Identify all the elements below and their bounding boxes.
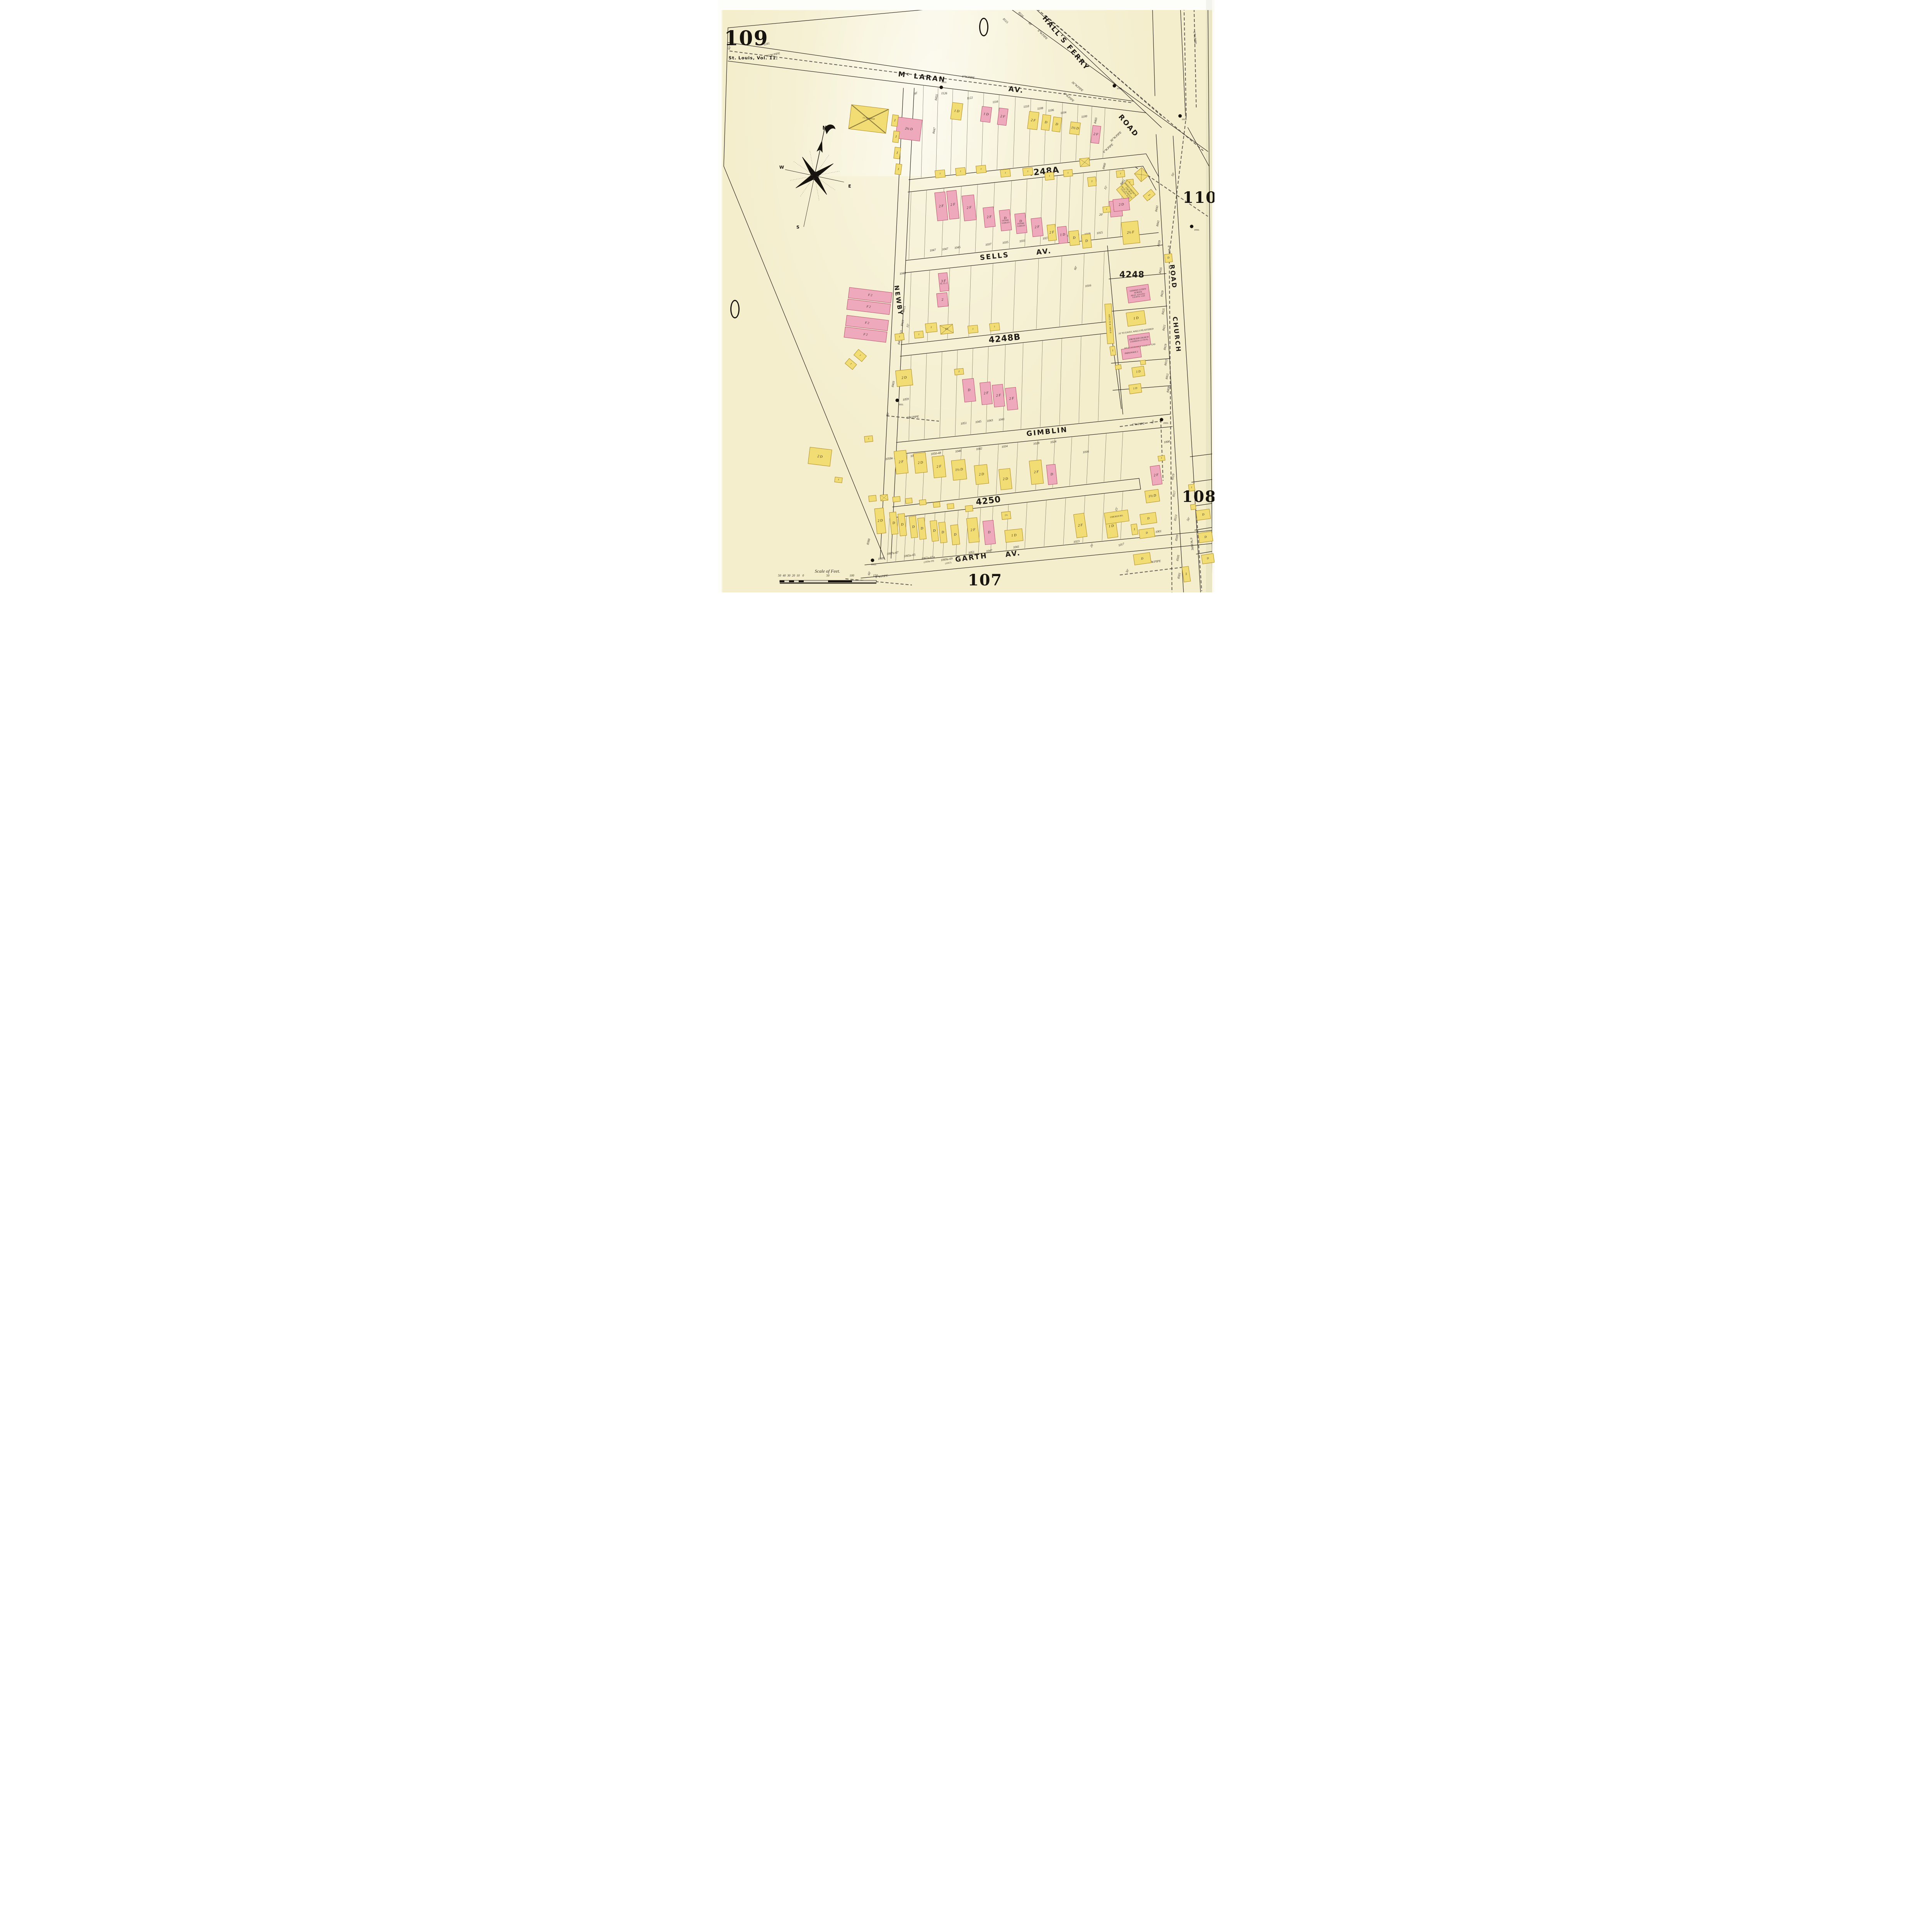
compass-letter-w: W [779, 165, 784, 170]
building [1140, 360, 1146, 365]
scale-tick-label: 10 [797, 574, 800, 577]
building: D [1164, 253, 1172, 263]
building-label: 1 [960, 170, 961, 173]
building: 2 F [932, 455, 946, 478]
building-label: 1 [1185, 572, 1187, 576]
building: 2½ F [1121, 221, 1140, 245]
building-label: 2 D [1002, 477, 1008, 481]
building-label: 2 F [1078, 523, 1083, 527]
building-label: F 2 [865, 321, 869, 325]
building-label: 1 D [1108, 524, 1114, 528]
building-label: 2 F [1049, 231, 1054, 235]
hydrant-marker [939, 86, 943, 89]
hydrant-marker [1112, 84, 1116, 88]
building-label: D [1204, 535, 1207, 539]
map-annotation-label: HYD. [1194, 229, 1200, 231]
building-label: 2 D [817, 455, 822, 459]
building-label: 1 [1147, 194, 1151, 197]
building-label: F 2 [868, 293, 872, 297]
hydrant-marker [1160, 418, 1163, 422]
building-label: 1½ D [955, 468, 963, 472]
building: D [1051, 117, 1061, 132]
building [965, 505, 973, 512]
building: D [1041, 114, 1051, 131]
scale-tick-label: 20 [792, 574, 795, 577]
building-label: 1 [939, 173, 941, 175]
building-label: 2 F [1153, 473, 1158, 477]
building-label: 2 D [1118, 203, 1124, 207]
building-label: 2 F [939, 204, 944, 209]
building: 2 F [1031, 218, 1043, 237]
german-lutheran-school: GERMAN LUTH'N SCHOOLHEAT: STOVES · LIGHT… [1126, 284, 1150, 303]
building: 1 D [980, 106, 992, 123]
building: 1 [935, 170, 946, 179]
building: 1 [955, 167, 966, 176]
building-label: 2 F [983, 391, 988, 396]
building-label: 1½ [945, 328, 948, 331]
building: 1 D [950, 102, 963, 120]
building-label: 1 [1091, 180, 1092, 183]
scale-tick-label: 30 [787, 574, 791, 577]
building: D [1196, 509, 1211, 521]
frame-gables-dwelling: DFRAME GABLES [999, 209, 1012, 231]
building [880, 494, 888, 501]
building: 1½ D [1144, 489, 1160, 503]
building: D [962, 378, 976, 403]
street-name-label: AV. [1008, 86, 1024, 95]
building-label: D [1147, 517, 1150, 520]
building-label: 1 [980, 168, 982, 171]
map-annotation-label: HYD. [1117, 88, 1122, 90]
scale-title: Scale of Feet. [815, 569, 840, 573]
building-label: SHELTER SHED [1107, 314, 1111, 334]
building-label: 2 D [901, 376, 906, 380]
building: 2 F [961, 195, 976, 221]
building-label: D [912, 525, 915, 529]
map-annotation-label: HYD. [1182, 119, 1187, 121]
street-name-label: AV. [1005, 550, 1021, 559]
building-label: 1 [868, 438, 869, 440]
hydrant-marker [1178, 114, 1182, 118]
building: 1 [1102, 206, 1111, 213]
building: 1 [1109, 346, 1116, 356]
building-label: 2 F [1034, 225, 1039, 230]
sheet-number: 109 [724, 29, 769, 49]
building-label: 1 [1049, 175, 1050, 178]
scale-tick-label: 150 [873, 574, 878, 577]
building [1115, 364, 1122, 370]
building: 1 [1063, 169, 1073, 177]
building-label: 2 F [1034, 470, 1039, 474]
adjacent-sheet-110: 110 [1183, 190, 1214, 206]
building: 2 F [1027, 111, 1039, 130]
building: 3 FSL.CL.3 [938, 272, 949, 292]
building: 1 [1158, 455, 1165, 461]
building: D [1068, 230, 1080, 246]
building-label: 1 [897, 168, 899, 171]
building: 1 [864, 435, 873, 442]
building-label: 1 [896, 151, 898, 155]
building-label: D [901, 523, 903, 527]
building: 1 [1188, 484, 1195, 492]
building: 1½ [939, 324, 953, 334]
building: 2 D [895, 369, 913, 387]
building-label: 2 F [986, 215, 992, 219]
building: 1½ [1001, 511, 1011, 520]
building: 1 D [1057, 226, 1068, 244]
building: 1 [895, 333, 905, 341]
building: 1 [891, 114, 899, 127]
building-label: 1½ D [1148, 494, 1156, 498]
building-label: D [988, 531, 990, 534]
building-label: 1 [1112, 349, 1113, 352]
building: 2 D [808, 447, 832, 467]
street-name-label: AV. [1036, 248, 1052, 256]
building-label: 1 [1005, 172, 1006, 175]
hydrant-marker [1190, 225, 1193, 228]
building: 2 F [980, 382, 993, 405]
building [892, 496, 900, 502]
building [933, 502, 940, 508]
building: D [1198, 531, 1213, 543]
scale-tick-label: 0 [803, 574, 804, 577]
adjacent-sheet-108: 108 [1182, 489, 1214, 505]
building-note: FRAME GABLES [1016, 223, 1026, 228]
map-annotation-label: 1126 [941, 92, 947, 95]
building: 2 [954, 368, 964, 375]
compass-letter-n: N [823, 126, 827, 131]
building-label: 1 D [1060, 233, 1065, 237]
building-label: 1 D [1133, 316, 1138, 320]
building-label: D [920, 527, 923, 531]
block-number-label: 4248 [1119, 271, 1145, 279]
building-label: 1 [849, 363, 852, 366]
building-label: 2 F [950, 203, 955, 207]
building-label: 2 D [917, 461, 923, 465]
building: 2 F [1046, 224, 1056, 241]
building: D [1139, 512, 1157, 525]
frame-gables-dwelling: DFRAME GABLES [1014, 213, 1027, 234]
building-label: 2 F [1093, 133, 1098, 137]
building: 2 F [1005, 387, 1018, 411]
building: 1 [895, 163, 902, 175]
building: D [1201, 553, 1214, 564]
building-label: 1 [918, 333, 920, 336]
building-label: 1½ [1004, 514, 1007, 517]
map-annotation-label: HYD. [871, 564, 877, 566]
building: 2½ D [895, 117, 922, 141]
building-label: D [1145, 532, 1148, 535]
building: 2 D [1112, 198, 1130, 212]
map-annotation-label: HYD. [898, 404, 904, 406]
building: D [1081, 234, 1092, 248]
building-label: 2 D [877, 519, 883, 523]
building [947, 503, 954, 509]
building-label: 1 D [954, 109, 959, 114]
building-label: 2 [958, 371, 960, 373]
adjacent-sheet-107: 107 [968, 573, 1003, 588]
building: 1½ D [951, 459, 967, 480]
building-label: 1 [972, 328, 974, 331]
building: D [1046, 464, 1057, 485]
building-label: CHICKEN HO. [1110, 515, 1123, 519]
building-label: 2 [941, 298, 943, 302]
building-label: F 2 [863, 333, 868, 337]
building: D [982, 520, 995, 545]
building-label: 1 [1120, 173, 1121, 175]
building-label: 1 [894, 119, 896, 122]
building-label: PARSONAGE 2 [1124, 351, 1138, 355]
building: 1 [914, 331, 924, 338]
building: 1 [892, 131, 900, 143]
map-annotation-label: HYD. [942, 82, 947, 84]
compass-rose [774, 117, 855, 233]
building-label: D [1050, 473, 1053, 476]
map-annotation-label: 20' [1099, 213, 1103, 216]
building: 1 [1087, 177, 1096, 187]
sanborn-map-sheet: 109 St. Louis, Vol. 11. 110 108 107 Scal… [718, 0, 1214, 592]
building-label: D [954, 533, 956, 537]
building: 1 [976, 165, 986, 174]
building-label: D [941, 531, 944, 534]
scale-tick-label: 40 [783, 574, 786, 577]
scale-tick-label: 50 [827, 574, 830, 577]
building: 2 F [893, 450, 908, 474]
building-label: 2 D [978, 473, 984, 477]
building-label: 2 F [898, 460, 903, 464]
building: 2 D [974, 464, 989, 485]
hydrant-marker [895, 399, 899, 402]
building-label: 1 [994, 326, 995, 328]
building: 2 [936, 293, 949, 308]
building: 2 F [997, 108, 1008, 126]
storage-building: 1½ STORAGE [848, 104, 889, 133]
building: 2 D [913, 452, 927, 473]
building-label: D [1044, 121, 1048, 124]
adjacent-sheet-zero [730, 300, 740, 318]
scale-tick-label: 100 [850, 574, 854, 577]
building-label: D [1206, 557, 1209, 560]
building-label: 1 D [1136, 370, 1141, 374]
building-label: 1 [899, 336, 900, 338]
building-label: 2 F [1031, 119, 1036, 123]
building: 1 D [1004, 529, 1023, 543]
building: 1 [925, 322, 937, 333]
building: 2 F [1029, 459, 1043, 485]
building: 1 [1000, 169, 1011, 178]
building-label: D [968, 388, 970, 392]
scale-tick-label: 50 [778, 574, 781, 577]
compass-letter-s: S [796, 225, 800, 230]
building-label: 2 F [936, 465, 941, 469]
adjacent-sheet-zero [979, 18, 988, 36]
building-label: 1 D [983, 112, 988, 117]
building-label: D [1202, 513, 1204, 516]
building-label: 2 F [970, 528, 975, 532]
building-label: 1½ D [1071, 126, 1079, 131]
building: 2 D [998, 468, 1012, 490]
building-label: 1 [1027, 170, 1029, 173]
building: 1 [834, 477, 843, 483]
building-label: 2½ F [1127, 230, 1134, 235]
building [1190, 504, 1196, 510]
scan-margin-left [718, 0, 723, 592]
building-label: 1 [1191, 486, 1192, 489]
building-label: 1 D [1011, 534, 1016, 538]
building-note: SL.CL.3 [940, 282, 947, 285]
building-label: 1 [930, 326, 932, 329]
building-label: 1 [859, 354, 861, 357]
building: 1 [1022, 167, 1033, 176]
building: 2 F [983, 207, 995, 228]
building-note: FRAME GABLES [1000, 219, 1011, 224]
building-label: 2 F [966, 206, 971, 210]
building-label: D [892, 521, 895, 525]
building-label: 1½ STORAGE [862, 117, 874, 121]
building-label: 1 [1106, 208, 1107, 211]
building-label: D [933, 529, 935, 533]
building-label: D [1073, 236, 1075, 240]
building: 2 F [966, 517, 980, 543]
building: D [1133, 552, 1151, 565]
scan-margin-top [718, 0, 1214, 10]
scale-bar [780, 580, 876, 584]
compass-letter-e: E [848, 184, 852, 189]
building-label: 1 [1133, 528, 1135, 531]
building-label: 1 D [1133, 387, 1137, 391]
building-label: 2 F [996, 394, 1001, 398]
building-label: 1 [1067, 172, 1069, 175]
building-label: 2½ D [905, 127, 913, 131]
building: 1 [1044, 172, 1054, 180]
building-label: 1 [1161, 457, 1162, 460]
building-label: D [1167, 257, 1170, 260]
building [1079, 158, 1090, 167]
hydrant-marker [871, 559, 874, 562]
building: 1½ D [1069, 122, 1081, 135]
building: 1 D [1128, 383, 1142, 394]
building-label: 2 F [1009, 397, 1014, 401]
building-label: F 2 [866, 305, 871, 309]
building-label: 2 F [1000, 115, 1005, 119]
building [868, 495, 877, 502]
building: 1 D [1131, 366, 1145, 378]
building-label: 1 [895, 135, 897, 139]
building [905, 498, 912, 504]
building: 1 [989, 323, 1000, 332]
building [919, 499, 926, 505]
building-label: D [1055, 122, 1058, 126]
building: 1 [1131, 524, 1138, 535]
building-label: D [1085, 239, 1088, 243]
building: 2 F [992, 384, 1005, 408]
map-annotation-label: HYD. [1163, 422, 1169, 425]
building: 1 [893, 147, 901, 159]
building: 1 [968, 325, 978, 334]
building-label: D [1141, 557, 1143, 560]
building: 1 [1116, 170, 1125, 178]
building-label: 1 [838, 479, 839, 481]
building: 1 D [1126, 310, 1146, 327]
